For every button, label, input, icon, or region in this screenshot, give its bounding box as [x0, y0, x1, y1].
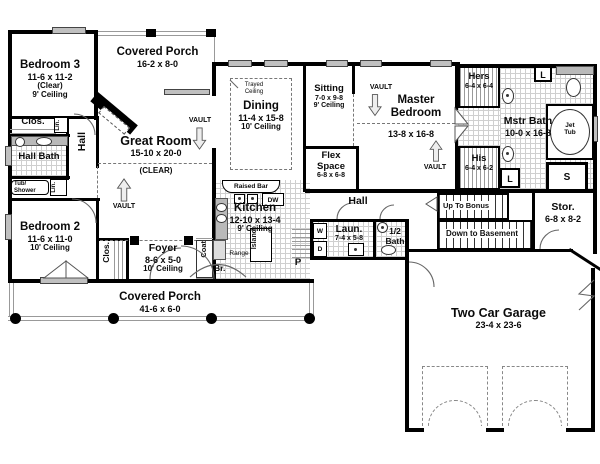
porch-roof-line	[98, 31, 216, 32]
room-name: Covered Porch	[100, 291, 220, 304]
great-room-clear-line	[98, 163, 212, 164]
room-name: Dining	[226, 100, 296, 113]
room-label-flex-space: Flex Space 6-8 x 6-8	[308, 151, 354, 180]
room-name: Two Car Garage	[416, 306, 581, 320]
stairs-up-label: Up To Bonus	[441, 201, 491, 210]
storage-door-arc	[540, 230, 559, 249]
room-name: Kitchen	[216, 202, 294, 215]
great-room-note: (CLEAR)	[112, 167, 200, 176]
coat-label: Coat	[200, 241, 208, 258]
room-dims: 7-4 x 5-8	[326, 235, 372, 243]
room-label-hall-center: Hall	[336, 196, 380, 208]
porch-edge-line	[9, 283, 10, 317]
porch-edge-line	[8, 320, 314, 321]
toilet-dot	[506, 152, 509, 155]
room-label-master-bedroom: Master Bedroom	[376, 94, 456, 120]
tub-shower-label: Tub/ Shower	[12, 181, 48, 194]
room-name: Mstr Bath	[488, 116, 568, 128]
room-dims: 6-4 x 6-4	[460, 83, 498, 91]
porch-edge-line	[13, 283, 14, 317]
room-ceiling: 10' Ceiling	[130, 265, 196, 274]
porch-roof-line	[98, 35, 216, 36]
window-marker	[52, 27, 86, 34]
sink-dot	[238, 197, 241, 200]
room-ceiling: 9' Ceiling	[14, 91, 86, 100]
porch-column-icon	[206, 313, 217, 324]
room-dims: 6-4 x 6-2	[460, 165, 498, 173]
linen-cabinet: Lin.	[50, 179, 67, 196]
room-label-laundry: Laun. 7-4 x 5-8	[326, 224, 372, 243]
room-label-great-room: Great Room 15-10 x 20-0	[100, 134, 212, 158]
room-name: Foyer	[130, 243, 196, 255]
master-vault-line	[357, 123, 455, 124]
linen-cabinet: L	[534, 66, 552, 82]
wall-segment	[373, 219, 376, 260]
toilet-icon	[381, 245, 396, 255]
closet-label: Clos.	[102, 242, 112, 263]
coat-closet: Coat	[196, 240, 213, 278]
vault-arrow-up-icon	[429, 140, 443, 162]
window-marker	[430, 60, 452, 67]
bedroom2-bay-window	[44, 261, 66, 278]
room-label-hers: Hers 6-4 x 6-4	[460, 72, 498, 90]
vault-label: VAULT	[358, 84, 404, 92]
vault-label: VAULT	[412, 164, 458, 172]
room-dims: 6-8 x 8-2	[536, 214, 590, 224]
window-marker	[5, 214, 12, 240]
room-label-hall-west: Hall	[72, 132, 94, 196]
wall-segment	[591, 268, 595, 432]
sink-icon	[36, 137, 52, 146]
bonus-stair-door-leaf	[426, 197, 437, 211]
window-marker	[326, 60, 348, 67]
porch-column-icon	[10, 313, 21, 324]
room-label-his: His 6-4 x 6-2	[460, 154, 498, 172]
bedroom2-closet: Clos.	[99, 242, 114, 278]
room-dims: 10-0 x 16-8	[488, 128, 568, 138]
room-label-foyer: Foyer 8-6 x 5-0 10' Ceiling	[130, 243, 196, 274]
stairs-down-label: Down to Basement	[444, 229, 520, 238]
room-name: Covered Porch	[100, 46, 215, 59]
room-name: Flex Space	[308, 151, 354, 172]
wall-segment	[352, 62, 355, 94]
linen-short-label: L	[502, 174, 518, 184]
porch-edge-line	[8, 316, 314, 317]
vault-label: VAULT	[100, 203, 148, 211]
bedroom2-bay-window	[66, 261, 88, 278]
toilet-icon	[566, 78, 581, 97]
sink-dot	[251, 197, 254, 200]
toilet-icon	[15, 137, 25, 147]
washer-label: W	[314, 228, 326, 235]
wall-segment	[566, 428, 595, 432]
room-name: Master Bedroom	[376, 94, 456, 120]
pantry-label: P	[290, 258, 306, 269]
room-label-half-bath: 1/2 Bath	[382, 227, 408, 246]
bedroom2-door-arc	[72, 199, 96, 223]
bath-counter	[556, 66, 594, 75]
vault-arrow-up-icon	[116, 178, 132, 202]
room-label-covered-porch-bottom: Covered Porch 41-6 x 6-0	[100, 291, 220, 314]
room-label-covered-porch-top: Covered Porch 16-2 x 8-0	[100, 46, 215, 69]
room-dims: 7-0 x 9-8	[306, 95, 352, 103]
floor-plan: Up To Bonus Down to Basement Lin. Tub/ S…	[0, 0, 600, 464]
dryer-label: D	[314, 246, 326, 253]
dryer: D	[313, 241, 327, 257]
linen-short-label: L	[536, 70, 550, 80]
porch-post-icon	[206, 29, 216, 37]
room-ceiling: 10' Ceiling	[226, 123, 296, 132]
room-label-garage: Two Car Garage 23-4 x 23-6	[416, 306, 581, 330]
wall-segment	[96, 116, 99, 168]
master-bedroom-dims: 13-8 x 16-8	[366, 129, 456, 139]
room-label-kitchen: Kitchen 12-10 x 13-4 9' Ceiling	[216, 202, 294, 234]
master-vault-line	[353, 94, 354, 146]
sink-dot	[354, 248, 357, 251]
room-ceiling: 10' Ceiling	[12, 244, 88, 253]
room-name: Bedroom 2	[12, 221, 88, 234]
window-marker	[164, 89, 210, 95]
room-name: Laun.	[326, 224, 372, 235]
vault-label: VAULT	[178, 117, 222, 125]
closet-label: Clos.	[12, 117, 54, 128]
window-marker	[40, 277, 88, 284]
half-bath-door-arc	[380, 205, 394, 219]
porch-post-icon	[146, 29, 156, 37]
toilet-dot	[506, 94, 509, 97]
wall-segment	[126, 238, 129, 282]
broom-closet-label: Br.	[214, 264, 238, 274]
closet-hatch	[114, 241, 125, 279]
room-dims: 41-6 x 6-0	[100, 304, 220, 314]
trayed-ceiling-note: Trayed Ceiling	[238, 82, 270, 95]
room-label-mstr-bath: Mstr Bath 10-0 x 16-8	[488, 116, 568, 138]
porch-edge-line	[313, 283, 314, 317]
porch-column-icon	[304, 313, 315, 324]
washer: W	[313, 223, 327, 239]
room-name: Stor.	[536, 202, 590, 214]
room-label-dining: Dining 11-4 x 15-8 10' Ceiling	[226, 100, 296, 132]
range-label: Range	[224, 250, 254, 257]
room-name: Hers	[460, 72, 498, 83]
linen-label: Lin.	[55, 120, 61, 131]
room-label-sitting: Sitting 7-0 x 9-8 9' Ceiling	[306, 84, 352, 110]
window-marker	[264, 60, 288, 67]
linen-cabinet: Lin.	[54, 117, 68, 133]
wall-segment	[310, 219, 408, 222]
room-ceiling: 9' Ceiling	[306, 102, 352, 110]
garage-entry-door-arc	[409, 262, 434, 287]
shower-box: S	[546, 162, 588, 192]
window-marker	[360, 60, 382, 67]
shower-label: S	[549, 172, 585, 183]
wall-segment	[310, 257, 408, 260]
wall-segment	[405, 428, 424, 432]
porch-edge-line	[309, 283, 310, 317]
wall-segment	[486, 428, 504, 432]
room-label-bedroom2: Bedroom 2 11-6 x 11-0 10' Ceiling	[12, 221, 88, 253]
room-dims: 23-4 x 23-6	[416, 320, 581, 330]
room-label-hall-bath: Hall Bath	[10, 152, 68, 163]
hall-opening-line	[97, 166, 98, 198]
hall-label: Hall	[77, 132, 89, 151]
room-dims: 6-8 x 6-8	[308, 172, 354, 180]
pantry-shelves-hatch	[292, 226, 310, 258]
room-label-storage: Stor. 6-8 x 8-2	[536, 202, 590, 224]
window-marker	[228, 60, 252, 67]
room-name: Great Room	[100, 134, 212, 148]
room-name: His	[460, 154, 498, 165]
wall-segment	[8, 198, 100, 201]
closet-hatch	[10, 127, 56, 134]
raised-bar-label: Raised Bar	[223, 183, 279, 190]
room-dims: 16-2 x 8-0	[100, 59, 215, 69]
room-dims: 15-10 x 20-0	[100, 148, 212, 158]
room-label-bedroom3: Bedroom 3 11-6 x 11-2 (Clear) 9' Ceiling	[14, 59, 86, 100]
room-name: Sitting	[306, 84, 352, 95]
room-name: Bedroom 3	[14, 59, 86, 72]
room-ceiling: 9' Ceiling	[216, 225, 294, 234]
linen-cabinet: L	[500, 168, 520, 188]
linen-label: Lin.	[51, 182, 57, 193]
porch-column-icon	[108, 313, 119, 324]
